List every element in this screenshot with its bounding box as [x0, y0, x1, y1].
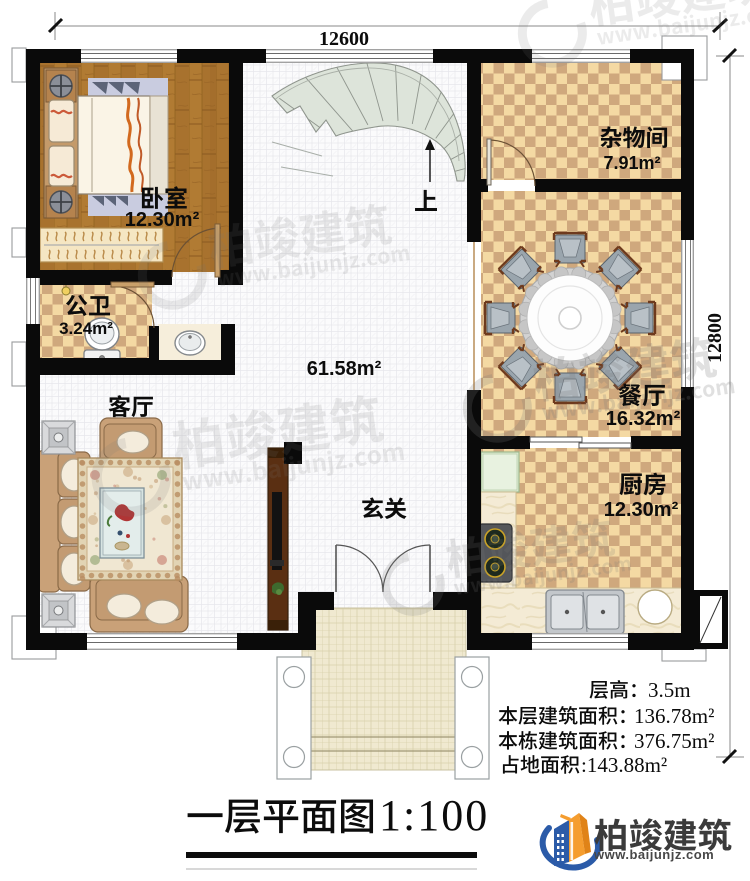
svg-text:1:100: 1:100 — [379, 791, 489, 840]
svg-text:12600: 12600 — [319, 28, 369, 50]
svg-text:www.baijunjz.com: www.baijunjz.com — [593, 847, 714, 862]
svg-text:12.30m²: 12.30m² — [604, 499, 679, 521]
svg-text:61.58m²: 61.58m² — [307, 358, 382, 380]
svg-text:12.30m²: 12.30m² — [125, 209, 200, 231]
svg-text:7.91m²: 7.91m² — [603, 153, 660, 173]
svg-text:16.32m²: 16.32m² — [606, 408, 681, 430]
svg-text:376.75m²: 376.75m² — [634, 729, 714, 753]
svg-text:136.78m²: 136.78m² — [634, 704, 714, 728]
svg-text:3.5m: 3.5m — [648, 678, 691, 702]
svg-text::143.88m²: :143.88m² — [581, 753, 667, 777]
svg-text:3.24m²: 3.24m² — [59, 319, 113, 338]
